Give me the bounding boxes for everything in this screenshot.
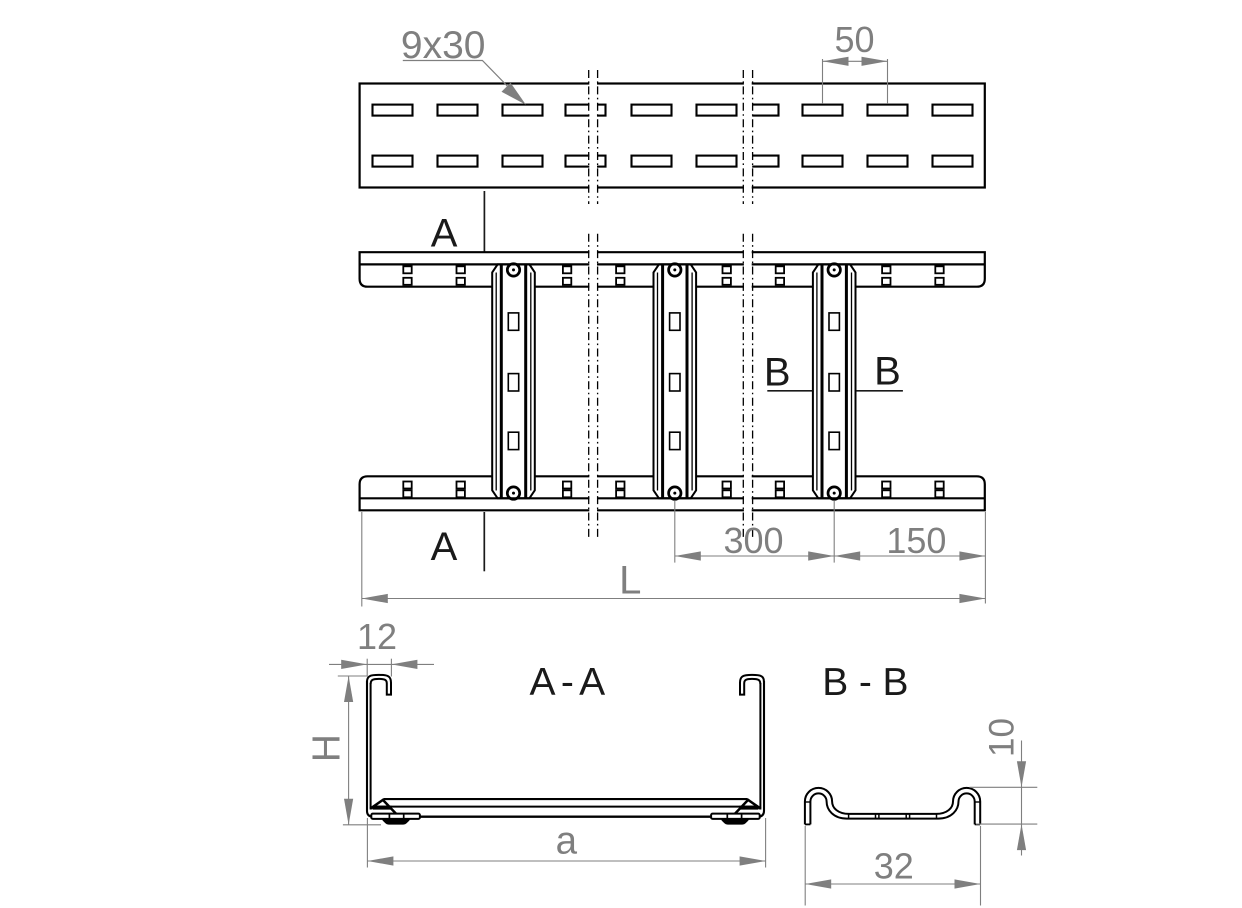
svg-text:a: a: [556, 820, 578, 863]
svg-text:A: A: [431, 525, 458, 569]
svg-text:H: H: [305, 734, 348, 762]
svg-text:150: 150: [886, 520, 946, 561]
svg-text:10: 10: [982, 718, 1021, 757]
svg-text:300: 300: [723, 520, 783, 561]
svg-text:B - B: B - B: [822, 661, 908, 704]
svg-text:A: A: [431, 212, 458, 256]
svg-text:50: 50: [834, 19, 874, 60]
svg-text:A - A: A - A: [530, 661, 606, 704]
svg-text:L: L: [619, 559, 641, 603]
svg-text:B: B: [764, 350, 791, 394]
svg-text:12: 12: [357, 616, 397, 657]
svg-text:B: B: [874, 349, 901, 393]
svg-text:32: 32: [874, 846, 914, 887]
